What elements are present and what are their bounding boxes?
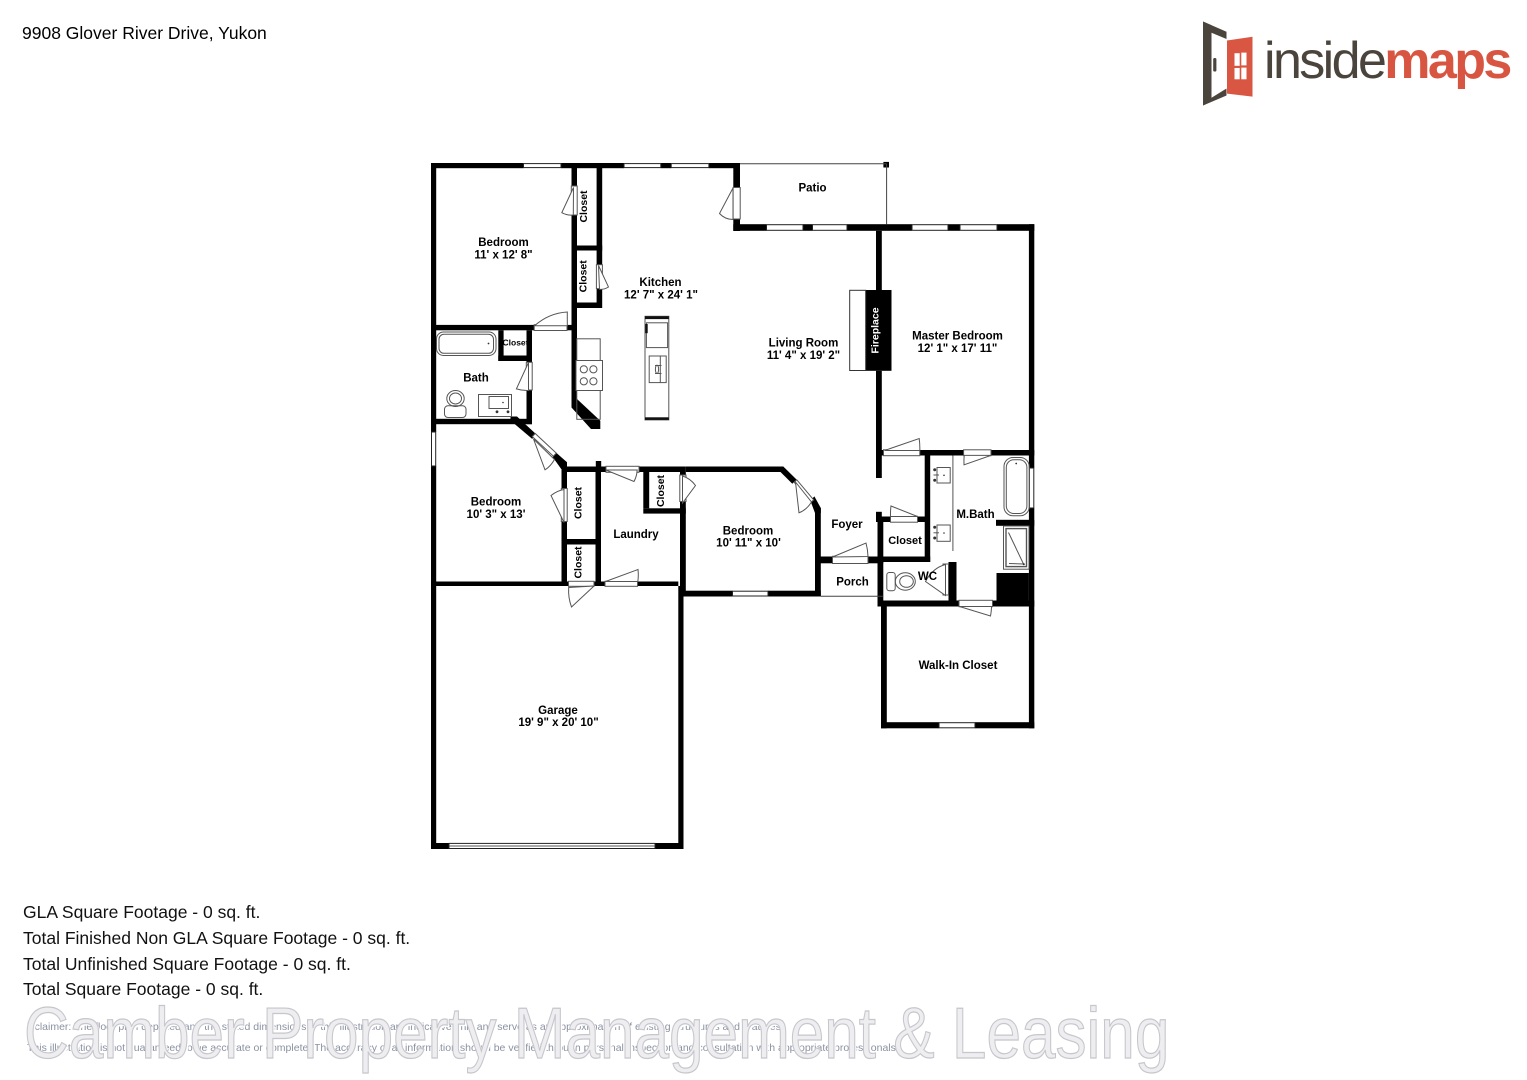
svg-text:Fireplace: Fireplace (870, 307, 882, 353)
svg-text:Laundry: Laundry (613, 529, 659, 541)
svg-text:Living Room: Living Room (769, 337, 839, 349)
svg-text:Bedroom: Bedroom (478, 237, 528, 249)
svg-text:Closet: Closet (888, 535, 922, 547)
svg-text:Closet: Closet (655, 474, 667, 507)
svg-text:Closet: Closet (578, 190, 590, 223)
svg-text:Porch: Porch (836, 576, 869, 588)
svg-text:Walk-In Closet: Walk-In Closet (919, 660, 998, 672)
svg-text:10' 3" x 13': 10' 3" x 13' (467, 509, 526, 521)
svg-text:12' 7" x 24' 1": 12' 7" x 24' 1" (624, 290, 698, 302)
svg-text:Closet: Closet (577, 260, 589, 293)
svg-text:Master Bedroom: Master Bedroom (912, 330, 1003, 342)
svg-text:Closet: Closet (503, 338, 529, 348)
svg-text:Closet: Closet (572, 546, 584, 579)
svg-text:12' 1" x 17' 11": 12' 1" x 17' 11" (918, 343, 998, 355)
svg-text:10' 11" x 10': 10' 11" x 10' (716, 537, 781, 549)
svg-text:Kitchen: Kitchen (639, 277, 681, 289)
svg-text:Bedroom: Bedroom (471, 496, 521, 508)
svg-text:WC: WC (918, 571, 937, 583)
svg-text:19' 9" x 20' 10": 19' 9" x 20' 10" (518, 717, 598, 729)
svg-text:M.Bath: M.Bath (956, 509, 994, 521)
svg-text:Garage: Garage (538, 705, 578, 717)
svg-text:Closet: Closet (572, 486, 584, 519)
svg-text:Patio: Patio (798, 182, 826, 194)
svg-text:Foyer: Foyer (831, 519, 863, 531)
svg-text:Bath: Bath (463, 373, 489, 385)
svg-text:11' 4" x 19' 2": 11' 4" x 19' 2" (767, 350, 840, 362)
svg-text:Bedroom: Bedroom (723, 525, 773, 537)
svg-text:11' x 12' 8": 11' x 12' 8" (474, 250, 532, 262)
